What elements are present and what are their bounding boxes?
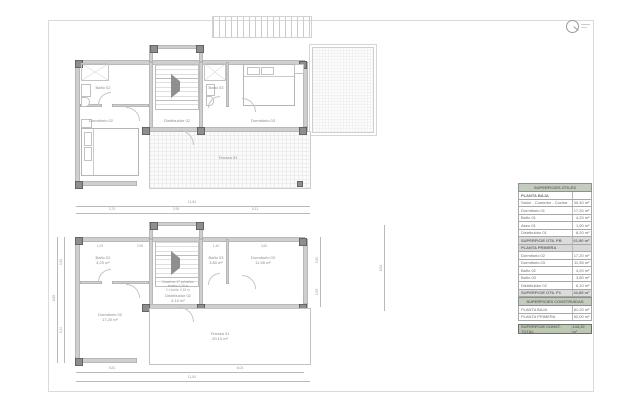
dim-inner: 1,02 [97,245,104,249]
dim-top: 5,11 [252,208,258,212]
wardrobe [204,63,226,81]
dim-bottom: 6,03 [237,367,244,371]
dim-inner: 3,60 [261,245,268,249]
column [299,238,307,246]
column [299,127,307,135]
wall [75,237,80,363]
nightstand [294,64,304,74]
sink [81,84,91,97]
column [196,222,204,230]
table-row: Baño 014,20 m² [518,215,592,223]
useful-surfaces-table: SUPERFICIES ÚTILES PLANTA BAJA Salón - C… [518,183,592,307]
bed-line [93,129,94,175]
drawing-sheet: Baño 02 Baño 03 Dormitorio 02 Distribuid… [0,0,640,412]
wall [112,104,149,107]
built-surfaces-table: SUPERFICIES CONSTRUIDAS PLANTA BAJA81,20… [518,297,592,334]
dim-left: 3,52 [60,259,64,266]
logo-text-mark [581,24,590,25]
room-label-terrace: Terraza 01 [219,156,238,161]
column [150,45,158,53]
table-row: Distribuidor 018,20 m² [518,230,592,238]
wall [149,239,153,305]
table-title: SUPERFICIES ÚTILES [518,183,592,192]
dim-bottom-overall: 11,84 [188,376,196,380]
dim-bottom: 5,81 [109,367,116,371]
room-label-bath2: Baño 02 4,20 m² [96,256,111,265]
room-label-hall: Distribuidor 02 6,10 m² [165,294,191,303]
dimension-line [384,225,385,311]
dim-left: 5,10 [60,327,64,334]
column [75,181,83,189]
room-label-bath3: Baño 03 [209,86,224,91]
dimension-line [76,372,304,373]
dim-left-overall: 8,85 [53,295,57,302]
wall [303,239,308,304]
section-header: PLANTA BAJA [519,192,549,199]
dim-top: 2,90 [173,208,180,212]
column [150,222,158,230]
section-header-row: PLANTA PRIMERA [518,245,592,253]
room-label-bed2: Dormitorio 02 17,20 m² [98,313,122,322]
room-label-hall: Distribuidor 02 [164,119,190,124]
room-label-bath3: Baño 03 3,80 m² [209,256,224,265]
column [75,237,83,245]
bed [243,64,295,106]
dim-inner: 2,90 [137,245,144,249]
dimension-line [64,237,65,363]
pergola-louver-hatch [212,16,312,38]
room-label-bed3: Dormitorio 03 11,55 m² [251,256,275,265]
side-deck-hatch [312,47,374,133]
total-row: SUPERFICIE CONST. TOTAL143,20 m² [518,324,592,334]
dimension-line [76,213,310,214]
table-row: Distribuidor 026,10 m² [518,282,592,290]
wall [149,62,153,128]
room-area: 17,20 m² [98,318,122,323]
room-label-bed2: Dormitorio 02 [89,119,113,124]
dim-far-right: 8,62 [380,265,384,272]
room-label-bath2: Baño 02 [96,86,111,91]
table-row: Baño 024,20 m² [518,267,592,275]
wall [75,181,137,186]
dim-right: 5,90 [316,257,320,264]
stair-note-line: C.Huella: 0,18 m [162,289,194,293]
column [197,127,205,135]
wall [75,60,80,186]
room-area: 6,10 m² [165,299,191,304]
wall [112,281,149,284]
terrace-outline [149,308,311,365]
room-area: 20,10 m² [211,337,230,342]
room-area: 3,80 m² [209,261,224,266]
logo-subtext-mark [581,27,587,28]
table-row: Dormitorio 0311,55 m² [518,260,592,268]
wall [199,239,203,305]
bed-line [244,76,294,77]
bed [81,128,139,176]
table-title: SUPERFICIES CONSTRUIDAS [518,297,592,306]
wall [226,239,229,284]
table-row: Aseo 011,90 m² [518,222,592,230]
room-area: 4,20 m² [96,261,111,266]
table-row: Dormitorio 0117,20 m² [518,207,592,215]
wall [75,358,137,363]
dimension-line [76,381,310,382]
dim-right: 2,95 [316,289,320,296]
room-label-terrace: Terraza 01 20,10 m² [211,332,230,341]
wardrobe [81,63,109,81]
subtotal-row: SUPERFICIE ÚTIL PB61,90 m² [518,237,592,245]
column [297,181,303,187]
stair-note: Escalera: 17 peldaños Huella: 0,28 m C.H… [162,281,194,292]
pillow [84,147,92,161]
dim-top-overall: 11,84 [188,201,196,205]
room-label-bed3: Dormitorio 03 [251,119,275,124]
dimension-line [57,237,58,363]
dim-top: 3,70 [109,208,116,212]
table-row: Salón - Comedor - Cocina30,40 m² [518,200,592,208]
pillow [247,67,260,75]
table-row: Baño 033,80 m² [518,275,592,283]
table-row: PLANTA BAJA81,20 m² [518,306,592,314]
pillow [84,132,92,146]
toilet [81,97,90,107]
table-row: PLANTA PRIMERA62,00 m² [518,314,592,322]
column [142,127,150,135]
wall [142,127,308,132]
dim-inner: 1,40 [213,245,220,249]
pillow [261,67,274,75]
dimension-line [320,237,321,307]
table-row: Dormitorio 0217,20 m² [518,252,592,260]
column [196,45,204,53]
room-area: 11,55 m² [251,261,275,266]
subtotal-row: SUPERFICIE ÚTIL P142,85 m² [518,290,592,298]
column [75,358,83,366]
wall [199,62,203,128]
wall [226,62,229,107]
